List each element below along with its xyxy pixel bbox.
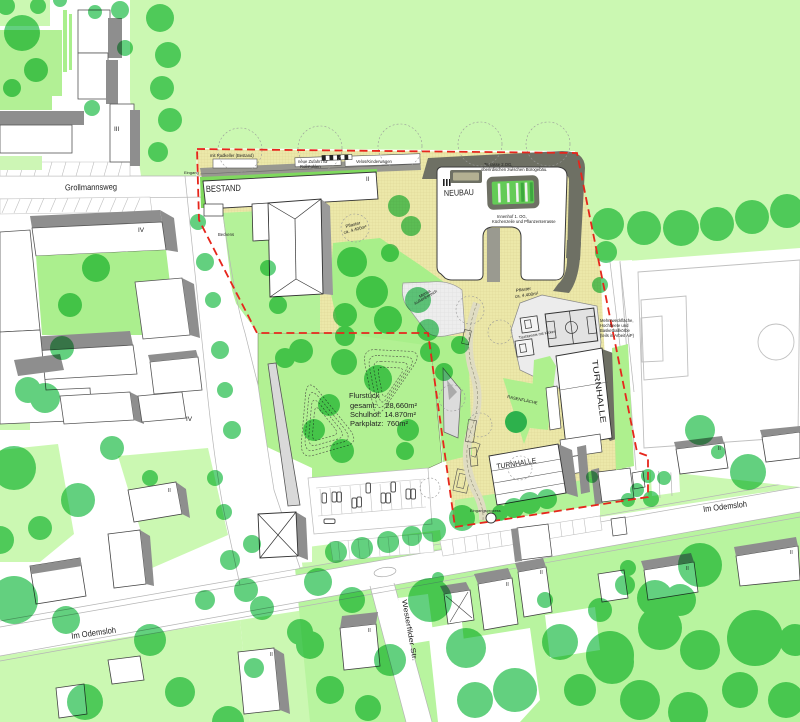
svg-text:Parkplatz:: Parkplatz:: [350, 419, 383, 428]
svg-text:II: II: [168, 488, 171, 494]
svg-text:Beckens: Beckens: [218, 232, 234, 237]
svg-text:Eingangsprozess: Eingangsprozess: [470, 508, 501, 513]
svg-text:(teils in Arbeit AiP): (teils in Arbeit AiP): [600, 333, 635, 338]
svg-text:Velos/Kinderwagen: Velos/Kinderwagen: [356, 159, 393, 164]
svg-text:II: II: [366, 177, 370, 183]
svg-text:14.870m²: 14.870m²: [384, 410, 416, 419]
svg-text:Flurstück: Flurstück: [349, 391, 380, 400]
svg-text:II: II: [540, 570, 543, 576]
svg-text:II: II: [506, 582, 509, 588]
svg-text:gesamt:: gesamt:: [350, 401, 377, 410]
svg-text:BESTAND: BESTAND: [206, 183, 242, 194]
svg-text:NEUBAU: NEUBAU: [444, 187, 474, 198]
svg-text:Schulhof:: Schulhof:: [350, 410, 381, 419]
svg-text:II: II: [686, 566, 689, 572]
svg-text:Grollmannsweg: Grollmannsweg: [65, 182, 117, 193]
svg-text:mit Radkeller (Bestand): mit Radkeller (Bestand): [210, 153, 254, 158]
svg-text:II: II: [718, 446, 721, 452]
svg-text:760m²: 760m²: [387, 419, 409, 428]
svg-text:III: III: [114, 126, 120, 133]
svg-text:Küchenzeile und Pflanzenterras: Küchenzeile und Pflanzenterrasse: [492, 219, 556, 224]
svg-text:IV: IV: [186, 416, 193, 423]
svg-text:II: II: [368, 628, 371, 634]
svg-text:Rollstühlen: Rollstühlen: [300, 164, 321, 169]
svg-text:II: II: [790, 550, 793, 556]
svg-text:oberirdischen zwischen Bürogeb: oberirdischen zwischen Bürogebäu.: [481, 167, 547, 172]
svg-text:II: II: [270, 652, 273, 658]
svg-text:28,660m²: 28,660m²: [385, 401, 417, 410]
svg-text:IV: IV: [138, 227, 145, 234]
svg-text:Eingang: Eingang: [184, 170, 199, 175]
